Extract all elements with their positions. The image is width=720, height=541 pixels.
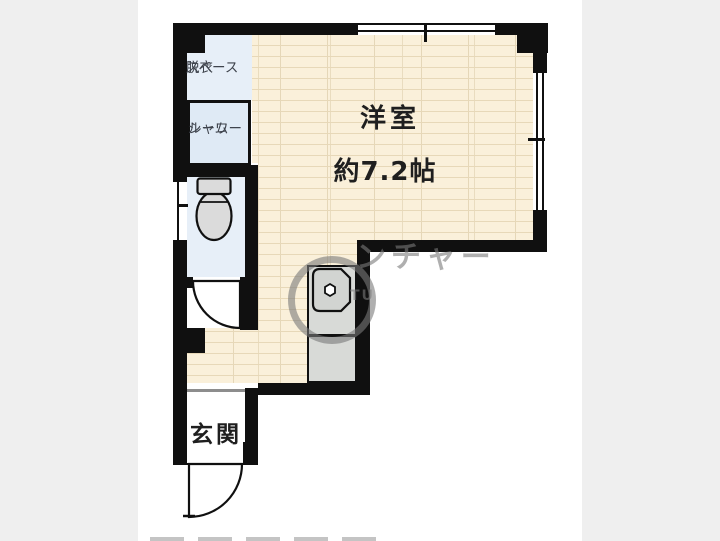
wall-left xyxy=(173,23,187,465)
wall-hall-stub xyxy=(185,328,205,353)
wall-corner-top-left xyxy=(173,23,205,53)
wall-toilet-door-left-jamb xyxy=(173,277,193,288)
window-toilet-line xyxy=(177,182,179,240)
window-toilet xyxy=(173,182,187,240)
wall-toilet-door-right-jamb xyxy=(240,277,258,330)
window-right-line-inner xyxy=(542,73,544,210)
window-right-mullion xyxy=(528,138,545,141)
main-room-name: 洋室 xyxy=(290,98,490,135)
main-room-size: 約7.2帖 xyxy=(285,151,485,188)
toilet-room-floor xyxy=(185,177,245,277)
entrance-label: 玄関 xyxy=(166,415,266,449)
floor-plan: 脱衣 スペース シャワー ルーム 洋室 約7.2帖 玄関 ンチャー TU xyxy=(0,0,720,541)
label-line: スペース xyxy=(186,61,238,75)
label-line: ルーム xyxy=(188,122,228,137)
wall-kitchen-bottom xyxy=(258,383,370,395)
cropped-watermark-row xyxy=(150,537,382,541)
window-toilet-mullion xyxy=(177,204,188,207)
entrance-step-edge xyxy=(187,389,245,392)
window-top-mullion xyxy=(424,23,427,42)
wall-corner-top-right-step2 xyxy=(533,23,547,73)
watermark-subtext: TU xyxy=(350,288,375,304)
window-right-line-outer xyxy=(536,73,538,210)
watermark-text: ンチャー xyxy=(356,232,496,276)
